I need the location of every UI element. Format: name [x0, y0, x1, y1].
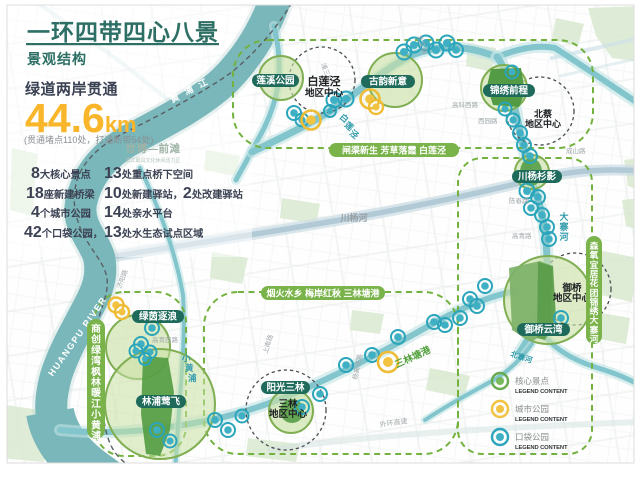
svg-text:口袋公园: 口袋公园 [515, 432, 549, 442]
svg-text:花: 花 [590, 277, 599, 288]
svg-text:核心景点: 核心景点 [515, 376, 550, 386]
svg-text:白莲泾: 白莲泾 [308, 74, 341, 88]
svg-text:黄: 黄 [91, 418, 101, 431]
svg-text:景观结构: 景观结构 [27, 51, 87, 67]
svg-text:寨: 寨 [558, 221, 569, 232]
svg-text:御桥云湾: 御桥云湾 [523, 324, 563, 336]
svg-text:大: 大 [590, 314, 599, 325]
svg-text:(贯通堵点110处，打通断带54处): (贯通堵点110处，打通断带54处) [24, 134, 153, 145]
svg-text:高科西路: 高科西路 [452, 100, 479, 109]
svg-text:城市公园: 城市公园 [515, 404, 549, 414]
svg-text:地区中心: 地区中心 [553, 292, 592, 304]
svg-text:西园路: 西园路 [478, 116, 498, 125]
svg-text:地区中心: 地区中心 [269, 408, 308, 420]
svg-text:大: 大 [559, 211, 568, 222]
svg-text:绿: 绿 [91, 343, 101, 356]
svg-text:林: 林 [91, 376, 101, 389]
svg-text:湾: 湾 [91, 354, 101, 367]
svg-text:阳光三林: 阳光三林 [266, 382, 305, 394]
svg-text:地区中心: 地区中心 [305, 87, 344, 99]
svg-text:烟火水乡 梅岸红秋 三林塘港: 烟火水乡 梅岸红秋 三林塘港 [266, 288, 380, 299]
svg-text:氧: 氧 [589, 249, 599, 260]
svg-text:黄: 黄 [185, 363, 194, 373]
svg-text:创: 创 [90, 333, 101, 346]
svg-text:河: 河 [590, 333, 599, 344]
svg-text:浦: 浦 [188, 373, 197, 383]
svg-text:滨江最具文化休闲活力区: 滨江最具文化休闲活力区 [125, 157, 180, 164]
svg-text:LEGEND CONTENT: LEGEND CONTENT [515, 417, 568, 423]
svg-text:浦: 浦 [91, 429, 101, 442]
svg-text:小: 小 [181, 353, 191, 363]
svg-text:成山路: 成山路 [566, 146, 586, 155]
svg-text:小: 小 [91, 408, 101, 421]
svg-text:陈春路: 陈春路 [509, 196, 529, 205]
svg-text:高青西路: 高青西路 [152, 335, 179, 344]
svg-text:高青路: 高青路 [512, 231, 532, 240]
svg-text:川杨河: 川杨河 [339, 212, 367, 223]
svg-text:闸渠新生 芳草落霞 白莲泾: 闸渠新生 芳草落霞 白莲泾 [342, 145, 446, 156]
svg-text:北蔡: 北蔡 [534, 108, 552, 119]
svg-text:莲溪公园: 莲溪公园 [256, 75, 294, 87]
svg-text:锦绣前程: 锦绣前程 [490, 85, 529, 97]
svg-text:一环四带四心八景: 一环四带四心八景 [27, 19, 219, 45]
svg-text:地区中心: 地区中心 [525, 118, 561, 129]
svg-text:枫: 枫 [91, 365, 101, 378]
svg-text:林浦莺飞: 林浦莺飞 [142, 396, 181, 408]
svg-text:河: 河 [559, 231, 568, 242]
svg-text:LEGEND CONTENT: LEGEND CONTENT [515, 389, 568, 395]
svg-text:川杨杉影: 川杨杉影 [517, 171, 557, 183]
svg-text:商: 商 [91, 322, 101, 335]
svg-text:古韵新意: 古韵新意 [369, 76, 408, 88]
svg-text:LEGEND CONTENT: LEGEND CONTENT [515, 445, 568, 451]
svg-text:暖: 暖 [91, 386, 101, 399]
svg-text:江: 江 [91, 397, 101, 410]
svg-text:绿茵逐浪: 绿茵逐浪 [139, 311, 178, 323]
